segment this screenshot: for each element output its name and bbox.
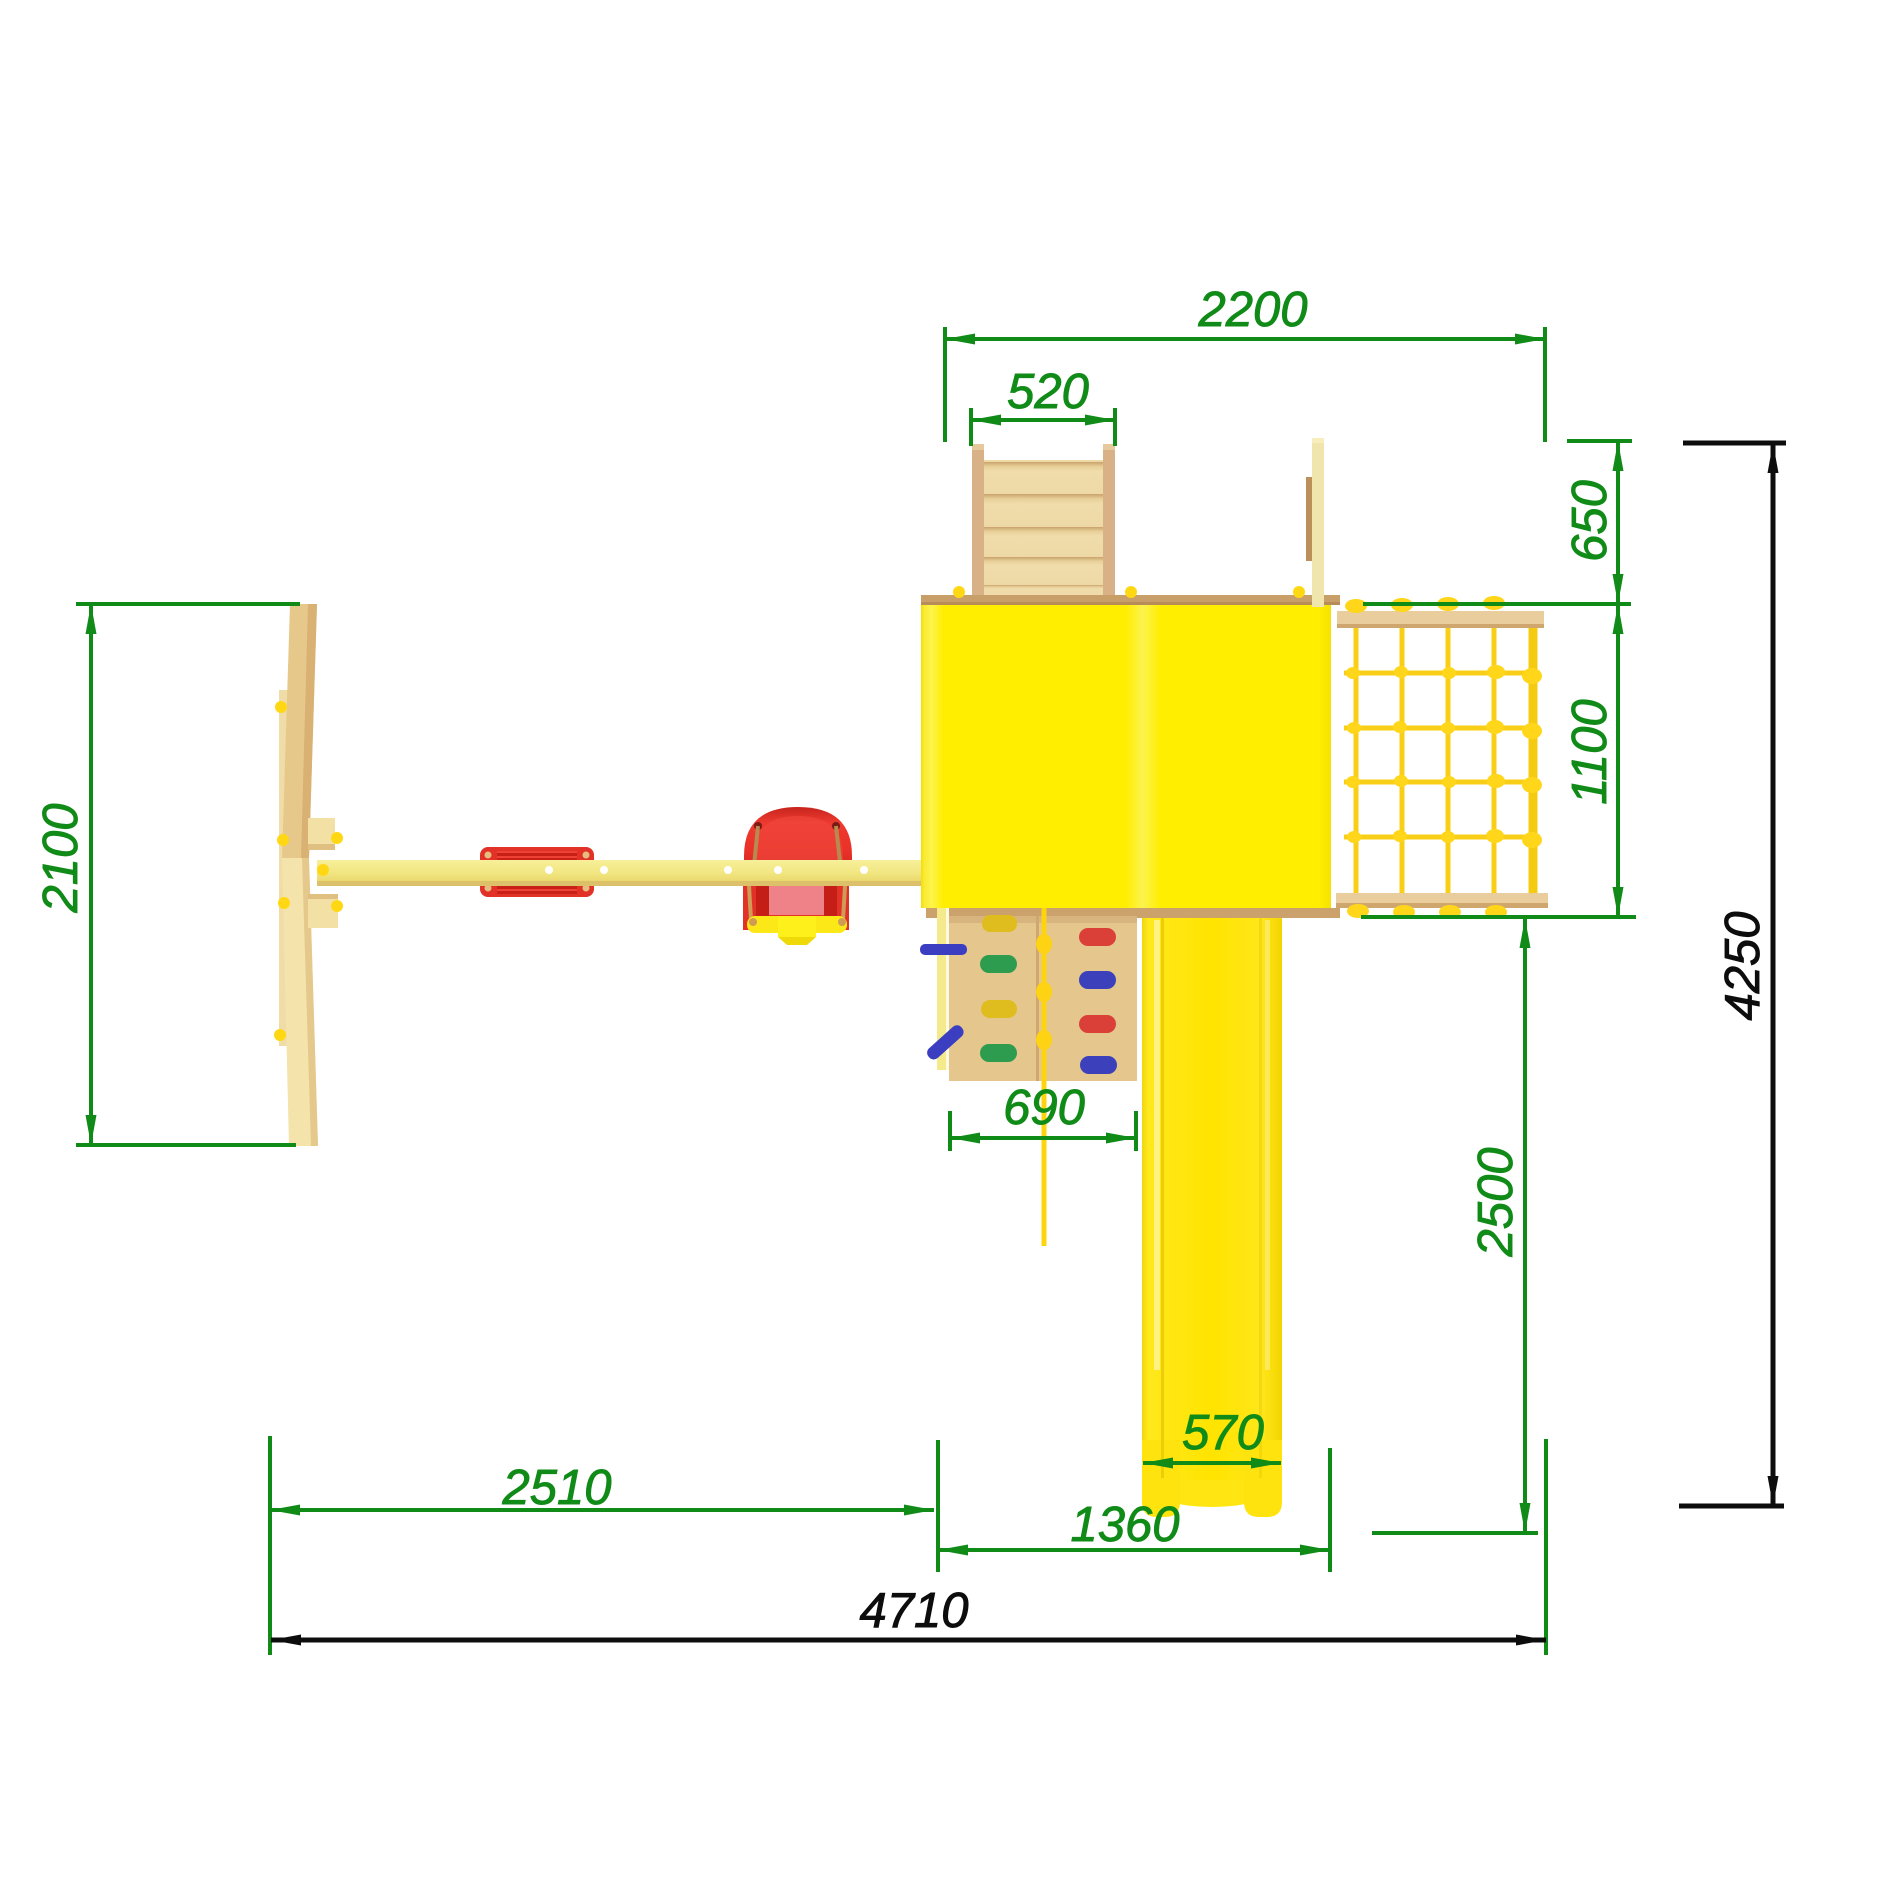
svg-text:4710: 4710 [859, 1584, 968, 1638]
svg-text:650: 650 [1563, 480, 1617, 562]
svg-text:1100: 1100 [1563, 699, 1617, 804]
svg-text:570: 570 [1182, 1406, 1264, 1460]
svg-text:690: 690 [1003, 1081, 1085, 1135]
svg-text:520: 520 [1007, 365, 1089, 419]
svg-text:1360: 1360 [1070, 1498, 1179, 1552]
svg-text:4250: 4250 [1716, 911, 1770, 1020]
svg-text:2200: 2200 [1197, 283, 1307, 337]
svg-text:2500: 2500 [1469, 1147, 1523, 1257]
svg-text:2100: 2100 [34, 803, 88, 913]
svg-text:2510: 2510 [501, 1461, 611, 1515]
